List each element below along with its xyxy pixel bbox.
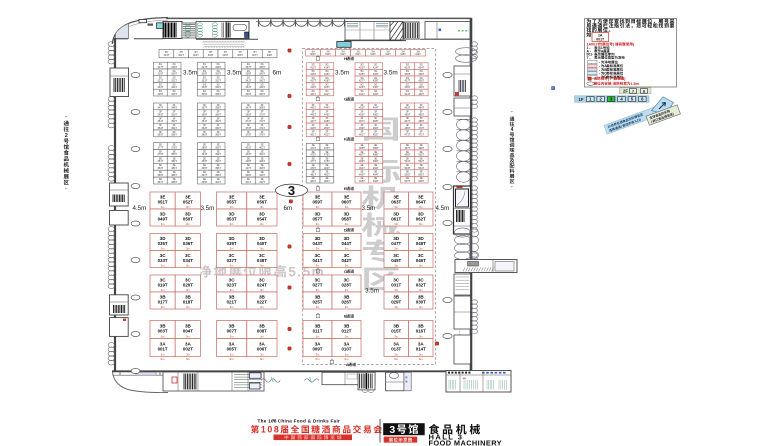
svg-text:←: ← — [510, 109, 514, 114]
svg-text:014T: 014T — [416, 346, 426, 351]
svg-text:3m: 3m — [161, 222, 165, 226]
svg-text:429T: 429T — [359, 86, 365, 89]
svg-text:405T: 405T — [246, 160, 252, 163]
svg-text:409T: 409T — [246, 174, 252, 177]
svg-text:404T: 404T — [259, 153, 265, 156]
svg-text:456T: 456T — [373, 113, 379, 116]
svg-text:038T: 038T — [257, 258, 267, 263]
svg-text:3m: 3m — [161, 334, 165, 338]
svg-text:445T: 445T — [310, 113, 316, 116]
svg-text:←: ← — [510, 184, 514, 189]
svg-text:3m: 3m — [260, 288, 264, 292]
svg-text:058T: 058T — [341, 216, 351, 221]
svg-text:422T: 422T — [324, 93, 330, 96]
svg-text:360T: 360T — [215, 113, 221, 116]
svg-text:398T: 398T — [215, 174, 221, 177]
svg-text:037T: 037T — [227, 258, 237, 263]
svg-text:3m: 3m — [345, 305, 349, 309]
svg-text:478T: 478T — [324, 160, 330, 163]
svg-text:380T: 380T — [171, 153, 177, 156]
svg-text:373T: 373T — [246, 127, 252, 130]
svg-text:479T: 479T — [310, 167, 316, 170]
svg-text:1F: 1F — [579, 97, 584, 102]
svg-text:375T: 375T — [246, 134, 252, 137]
svg-text:497T: 497T — [405, 147, 411, 150]
svg-text:386T: 386T — [171, 174, 177, 177]
svg-text:312T: 312T — [355, 53, 361, 56]
svg-text:3m: 3m — [345, 352, 349, 356]
svg-text:392T: 392T — [215, 153, 221, 156]
svg-text:032T: 032T — [416, 282, 426, 287]
svg-text:3m: 3m — [316, 334, 320, 338]
svg-text:415T: 415T — [310, 73, 316, 76]
svg-text:3m: 3m — [161, 352, 165, 356]
svg-text:018T: 018T — [183, 299, 193, 304]
svg-text:494T: 494T — [373, 173, 379, 176]
svg-text:504T: 504T — [418, 167, 424, 170]
svg-text:321T: 321T — [158, 79, 164, 82]
svg-text:3m: 3m — [260, 352, 264, 356]
svg-text:025T: 025T — [312, 299, 322, 304]
svg-text:339T: 339T — [246, 73, 252, 76]
svg-text:009T: 009T — [312, 346, 322, 351]
svg-text:041T: 041T — [312, 258, 322, 263]
svg-text:331T: 331T — [202, 79, 208, 82]
svg-text:3m: 3m — [316, 205, 320, 209]
svg-text:390T: 390T — [215, 146, 221, 149]
svg-text:382T: 382T — [171, 160, 177, 163]
svg-text:377T: 377T — [158, 146, 164, 149]
svg-text:344T: 344T — [259, 86, 265, 89]
svg-text:444T: 444T — [324, 107, 330, 110]
svg-text:048T: 048T — [416, 241, 426, 246]
svg-text:6m: 6m — [316, 357, 321, 361]
svg-text:3m: 3m — [316, 288, 320, 292]
svg-text:495T: 495T — [359, 180, 365, 183]
svg-text:442T: 442T — [418, 93, 424, 96]
svg-text:362T: 362T — [215, 120, 221, 123]
svg-text:008T: 008T — [257, 328, 267, 333]
svg-text:433T: 433T — [405, 66, 411, 69]
svg-text:3.5m: 3.5m — [362, 205, 376, 212]
svg-text:th: th — [273, 418, 276, 422]
svg-text:450T: 450T — [324, 127, 330, 130]
svg-text:3m: 3m — [394, 305, 398, 309]
svg-text:408T: 408T — [259, 167, 265, 170]
svg-text:353T: 353T — [158, 127, 164, 130]
svg-text:3m: 3m — [394, 352, 398, 356]
svg-text:467T: 467T — [405, 120, 411, 123]
svg-text:414T: 414T — [324, 66, 330, 69]
svg-text:306T: 306T — [237, 54, 243, 57]
svg-text:378T: 378T — [171, 146, 177, 149]
svg-text:013T: 013T — [391, 346, 401, 351]
svg-text:054T: 054T — [257, 216, 267, 221]
svg-text:019T: 019T — [158, 282, 168, 287]
svg-text:3.5m: 3.5m — [335, 69, 349, 76]
svg-text:319T: 319T — [158, 73, 164, 76]
svg-text:046T: 046T — [416, 258, 426, 263]
svg-text:425T: 425T — [359, 73, 365, 76]
svg-text:481T: 481T — [310, 173, 316, 176]
svg-text:3m: 3m — [260, 222, 264, 226]
svg-text:435T: 435T — [405, 73, 411, 76]
svg-text:6m: 6m — [345, 357, 350, 361]
svg-text:486T: 486T — [373, 147, 379, 150]
svg-text:485T: 485T — [359, 147, 365, 150]
svg-text:023T: 023T — [227, 282, 237, 287]
svg-text:452T: 452T — [324, 134, 330, 137]
svg-text:428T: 428T — [373, 80, 379, 83]
svg-text:363T: 363T — [202, 127, 208, 130]
svg-text:3.5m: 3.5m — [201, 205, 215, 212]
svg-text:3m: 3m — [316, 246, 320, 250]
svg-text:451T: 451T — [310, 134, 316, 137]
svg-text:055T: 055T — [227, 199, 237, 204]
svg-text:367T: 367T — [246, 107, 252, 110]
svg-text:3m: 3m — [394, 246, 398, 250]
svg-text:418T: 418T — [324, 80, 330, 83]
svg-text:401T: 401T — [246, 146, 252, 149]
svg-text:326T: 326T — [171, 93, 177, 96]
svg-text:3m: 3m — [161, 288, 165, 292]
svg-text:432T: 432T — [373, 93, 379, 96]
svg-text:369T: 369T — [246, 113, 252, 116]
svg-text:3m: 3m — [419, 205, 423, 209]
svg-text:028T: 028T — [341, 282, 351, 287]
svg-text:3m: 3m — [260, 263, 264, 267]
svg-text:403T: 403T — [246, 153, 252, 156]
svg-text:493T: 493T — [359, 173, 365, 176]
svg-text:043T: 043T — [312, 241, 322, 246]
svg-text:484T: 484T — [324, 180, 330, 183]
svg-text:033T: 033T — [158, 258, 168, 263]
svg-text:3m: 3m — [419, 263, 423, 267]
svg-text:024T: 024T — [257, 282, 267, 287]
svg-text:501T: 501T — [405, 160, 411, 163]
svg-text:506T: 506T — [418, 173, 424, 176]
svg-text:487T: 487T — [359, 154, 365, 157]
svg-text:6m: 6m — [419, 357, 424, 361]
svg-text:007T: 007T — [227, 328, 237, 333]
svg-text:2F: 2F — [623, 89, 628, 94]
svg-text:011T: 011T — [313, 328, 323, 333]
svg-text:3m: 3m — [186, 246, 190, 250]
svg-text:050T: 050T — [183, 216, 193, 221]
svg-text:364T: 364T — [215, 127, 221, 130]
svg-text:3m: 3m — [419, 305, 423, 309]
svg-text:374T: 374T — [259, 127, 265, 130]
svg-text:443T: 443T — [310, 107, 316, 110]
svg-text:447T: 447T — [310, 120, 316, 123]
svg-text:042T: 042T — [341, 258, 351, 263]
svg-text:022T: 022T — [257, 299, 267, 304]
svg-text:379T: 379T — [158, 153, 164, 156]
svg-text:062T: 062T — [416, 216, 426, 221]
svg-text:387T: 387T — [158, 181, 164, 184]
svg-text:3.5m: 3.5m — [227, 69, 241, 76]
svg-text:474T: 474T — [324, 147, 330, 150]
svg-text:329T: 329T — [202, 73, 208, 76]
svg-text:454T: 454T — [373, 107, 379, 110]
svg-text:472T: 472T — [418, 134, 424, 137]
svg-text:489T: 489T — [359, 160, 365, 163]
svg-text:6m: 6m — [186, 357, 191, 361]
svg-text:348T: 348T — [171, 107, 177, 110]
svg-text:464T: 464T — [418, 107, 424, 110]
svg-text:4.5m: 4.5m — [133, 205, 147, 212]
svg-text:419T: 419T — [310, 86, 316, 89]
svg-text:365T: 365T — [202, 134, 208, 137]
svg-text:3m: 3m — [316, 263, 320, 267]
svg-text:309T: 309T — [310, 53, 316, 56]
svg-text:3m: 3m — [419, 352, 423, 356]
svg-text:361T: 361T — [202, 120, 208, 123]
svg-text:469T: 469T — [405, 127, 411, 130]
svg-text:476T: 476T — [324, 154, 330, 157]
svg-text:397T: 397T — [202, 174, 208, 177]
svg-text:503T: 503T — [405, 167, 411, 170]
svg-text:371T: 371T — [246, 120, 252, 123]
svg-text:324T: 324T — [171, 86, 177, 89]
svg-text:6m: 6m — [394, 357, 399, 361]
svg-text:508T: 508T — [418, 180, 424, 183]
svg-text:3m: 3m — [186, 305, 190, 309]
svg-text:505T: 505T — [405, 173, 411, 176]
svg-text:039T: 039T — [227, 241, 237, 246]
svg-text:396T: 396T — [215, 167, 221, 170]
svg-text:465T: 465T — [405, 113, 411, 116]
svg-text:3m: 3m — [161, 205, 165, 209]
svg-text:347T: 347T — [158, 107, 164, 110]
svg-text:383T: 383T — [158, 167, 164, 170]
svg-text:016T: 016T — [416, 328, 426, 333]
svg-text:488T: 488T — [373, 154, 379, 157]
svg-text:3m: 3m — [186, 334, 190, 338]
svg-text:6m: 6m — [284, 205, 293, 212]
svg-text:4: 4 — [511, 127, 514, 133]
svg-text:005T: 005T — [227, 346, 237, 351]
svg-text:3.5m: 3.5m — [183, 69, 197, 76]
svg-text:410T: 410T — [259, 174, 265, 177]
svg-text:316T: 316T — [415, 53, 421, 56]
svg-text:333T: 333T — [202, 86, 208, 89]
svg-text:325T: 325T — [158, 93, 164, 96]
svg-text:3m: 3m — [419, 246, 423, 250]
svg-text:424T: 424T — [373, 66, 379, 69]
svg-text:322T: 322T — [171, 79, 177, 82]
svg-text:3m: 3m — [419, 334, 423, 338]
svg-text:056T: 056T — [257, 199, 267, 204]
svg-text:426T: 426T — [373, 73, 379, 76]
svg-text:500T: 500T — [418, 154, 424, 157]
svg-text:012T: 012T — [341, 328, 351, 333]
svg-text:3.5m: 3.5m — [384, 69, 398, 76]
svg-text:406T: 406T — [259, 160, 265, 163]
svg-text:417T: 417T — [310, 80, 316, 83]
svg-text:060T: 060T — [341, 199, 351, 204]
svg-text:356T: 356T — [171, 134, 177, 137]
svg-text:049T: 049T — [158, 216, 168, 221]
svg-text:3m: 3m — [230, 205, 234, 209]
svg-text:359T: 359T — [202, 113, 208, 116]
svg-text:350T: 350T — [171, 113, 177, 116]
svg-text:345T: 345T — [246, 93, 252, 96]
svg-text:015T: 015T — [391, 328, 401, 333]
svg-text:315T: 315T — [400, 53, 406, 56]
svg-text:3m: 3m — [260, 305, 264, 309]
svg-text:323T: 323T — [158, 86, 164, 89]
svg-text:313T: 313T — [370, 53, 376, 56]
svg-text:040T: 040T — [257, 241, 267, 246]
svg-text:393T: 393T — [202, 160, 208, 163]
svg-text:507T: 507T — [405, 180, 411, 183]
svg-text:020T: 020T — [183, 282, 193, 287]
svg-text:031T: 031T — [391, 282, 401, 287]
svg-text:3m: 3m — [230, 288, 234, 292]
svg-text:436T: 436T — [418, 73, 424, 76]
svg-text:3m: 3m — [316, 305, 320, 309]
svg-text:453T: 453T — [359, 107, 365, 110]
svg-text:6m: 6m — [260, 357, 265, 361]
svg-text:468T: 468T — [418, 120, 424, 123]
svg-text:3.5m: 3.5m — [365, 288, 379, 295]
svg-text:411T: 411T — [246, 181, 252, 184]
svg-text:482T: 482T — [324, 173, 330, 176]
svg-text:430T: 430T — [373, 86, 379, 89]
svg-text:310T: 310T — [325, 53, 331, 56]
svg-text:491T: 491T — [359, 167, 365, 170]
svg-text:420T: 420T — [324, 86, 330, 89]
svg-text:3m: 3m — [186, 205, 190, 209]
svg-text:305T: 305T — [223, 54, 229, 57]
svg-text:437T: 437T — [405, 80, 411, 83]
svg-text:385T: 385T — [158, 174, 164, 177]
svg-text:021T: 021T — [227, 299, 237, 304]
svg-text:394T: 394T — [215, 160, 221, 163]
svg-text:034T: 034T — [183, 258, 193, 263]
svg-text:395T: 395T — [202, 167, 208, 170]
svg-text:052T: 052T — [183, 199, 193, 204]
svg-text:064T: 064T — [416, 199, 426, 204]
svg-text:3m: 3m — [419, 288, 423, 292]
svg-text:358T: 358T — [215, 107, 221, 110]
svg-text:342T: 342T — [259, 79, 265, 82]
svg-text:051T: 051T — [158, 199, 168, 204]
svg-text:063T: 063T — [391, 199, 401, 204]
svg-text:053T: 053T — [227, 216, 237, 221]
svg-text:3m: 3m — [230, 334, 234, 338]
svg-text:391T: 391T — [202, 153, 208, 156]
svg-text:416T: 416T — [324, 73, 330, 76]
svg-text:449T: 449T — [310, 127, 316, 130]
svg-text:3m: 3m — [260, 246, 264, 250]
svg-text:3m: 3m — [230, 246, 234, 250]
svg-text:3m: 3m — [186, 222, 190, 226]
svg-text:459T: 459T — [359, 127, 365, 130]
svg-text:336T: 336T — [215, 93, 221, 96]
svg-text:3m: 3m — [394, 222, 398, 226]
svg-text:001T: 001T — [158, 346, 168, 351]
svg-text:498T: 498T — [418, 147, 424, 150]
svg-text:4.5m: 4.5m — [436, 205, 450, 212]
svg-text:455T: 455T — [359, 113, 365, 116]
svg-text:381T: 381T — [158, 160, 164, 163]
svg-text:328T: 328T — [215, 66, 221, 69]
svg-text:463T: 463T — [405, 107, 411, 110]
svg-text:China Food & Drinks Fair: China Food & Drinks Fair — [278, 419, 340, 424]
svg-text:3m: 3m — [230, 263, 234, 267]
svg-text:302T: 302T — [178, 54, 184, 57]
svg-text:421T: 421T — [310, 93, 316, 96]
svg-text:320T: 320T — [171, 73, 177, 76]
svg-text:470T: 470T — [418, 127, 424, 130]
svg-text:3m: 3m — [316, 352, 320, 356]
svg-text:3m: 3m — [394, 205, 398, 209]
svg-text:461T: 461T — [359, 134, 365, 137]
svg-text:3m: 3m — [394, 334, 398, 338]
svg-text:330T: 330T — [215, 73, 221, 76]
svg-text:407T: 407T — [246, 167, 252, 170]
svg-text:061T: 061T — [391, 216, 401, 221]
svg-text:366T: 366T — [215, 134, 221, 137]
svg-text:017T: 017T — [158, 299, 168, 304]
svg-text:3m: 3m — [161, 263, 165, 267]
svg-text:480T: 480T — [324, 167, 330, 170]
svg-text:446T: 446T — [324, 113, 330, 116]
svg-text:458T: 458T — [373, 120, 379, 123]
svg-text:438T: 438T — [418, 80, 424, 83]
svg-text:108: 108 — [261, 425, 280, 435]
svg-text:6m: 6m — [273, 69, 282, 76]
svg-text:3m: 3m — [345, 334, 349, 338]
svg-text:372T: 372T — [259, 120, 265, 123]
svg-text:337T: 337T — [246, 66, 252, 69]
svg-text:354T: 354T — [171, 127, 177, 130]
svg-text:457T: 457T — [359, 120, 365, 123]
svg-text:3: 3 — [389, 424, 396, 436]
svg-text:045T: 045T — [391, 258, 401, 263]
svg-text:355T: 355T — [158, 134, 164, 137]
svg-text:035T: 035T — [158, 241, 168, 246]
svg-text:057T: 057T — [312, 216, 322, 221]
svg-text:413T: 413T — [310, 66, 316, 69]
svg-text:←: ← — [64, 185, 69, 190]
svg-text:3m: 3m — [260, 205, 264, 209]
svg-text:036T: 036T — [183, 241, 193, 246]
svg-text:338T: 338T — [259, 66, 265, 69]
svg-text:402T: 402T — [259, 146, 265, 149]
svg-text:3m: 3m — [394, 263, 398, 267]
svg-text:3m: 3m — [419, 222, 423, 226]
svg-text:400T: 400T — [215, 181, 221, 184]
svg-text:6m: 6m — [230, 357, 235, 361]
svg-text:3m: 3m — [345, 288, 349, 292]
svg-text:004T: 004T — [183, 328, 193, 333]
svg-text:3m: 3m — [230, 352, 234, 356]
svg-text:388T: 388T — [171, 181, 177, 184]
svg-text:471T: 471T — [405, 134, 411, 137]
svg-text:460T: 460T — [373, 127, 379, 130]
svg-text:343T: 343T — [246, 86, 252, 89]
svg-text:3m: 3m — [260, 334, 264, 338]
svg-text:499T: 499T — [405, 154, 411, 157]
svg-text:3m: 3m — [345, 222, 349, 226]
svg-text:3m: 3m — [345, 263, 349, 267]
svg-text:334T: 334T — [215, 86, 221, 89]
svg-text:423T: 423T — [359, 66, 365, 69]
svg-text:010T: 010T — [341, 346, 351, 351]
